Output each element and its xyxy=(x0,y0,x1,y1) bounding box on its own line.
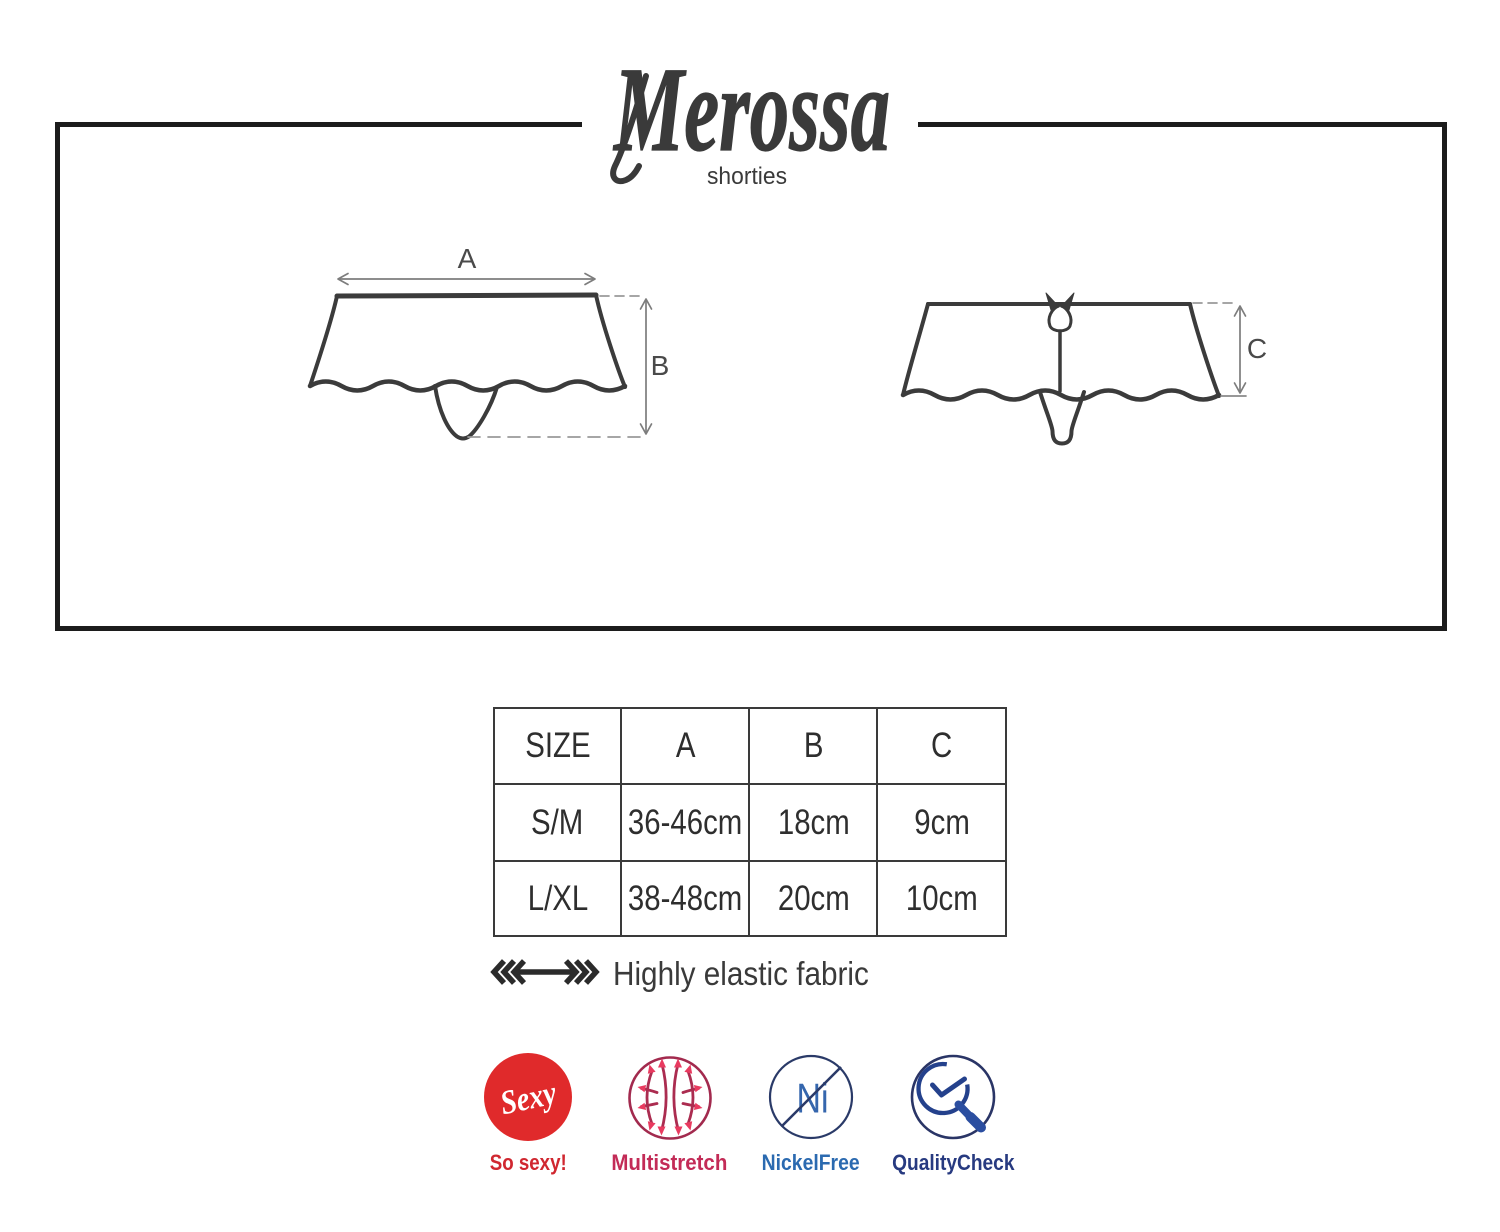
svg-text:B: B xyxy=(651,350,670,381)
svg-text:Ni: Ni xyxy=(797,1075,829,1122)
svg-text:C: C xyxy=(1247,333,1267,364)
svg-text:A: A xyxy=(458,243,477,274)
